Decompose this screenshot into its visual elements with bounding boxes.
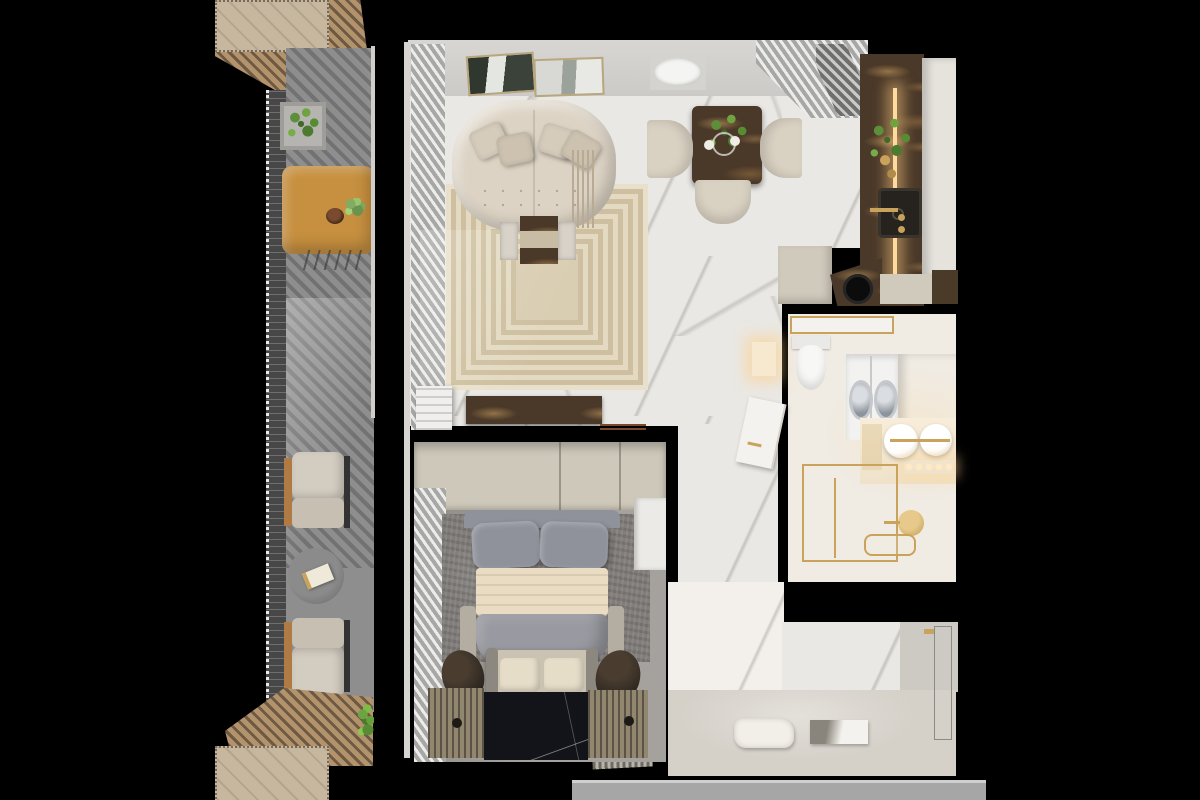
wall-art-right [533, 57, 604, 97]
outdoor-armchair-upper [284, 452, 352, 532]
dining-table [692, 106, 762, 184]
towel-stack [416, 386, 452, 430]
book [302, 563, 334, 589]
dining-chair-left [647, 120, 693, 178]
armchair-seat [292, 498, 344, 528]
entry-door-hardware [924, 629, 934, 634]
mat-knob [624, 716, 634, 726]
dryer-door [874, 380, 898, 420]
shower-inner-glass [834, 478, 836, 558]
flat-art-mat [810, 720, 868, 744]
fruit-bowl [326, 208, 344, 224]
gold-faucet-bar [890, 439, 950, 442]
wire-chair-hint [300, 250, 364, 270]
kitchen-tall-cabinets [922, 58, 956, 276]
outside-corridor-strip [572, 780, 986, 800]
round-side-table [288, 548, 344, 604]
entry-sage-closet [782, 582, 958, 624]
dark-wood-cabinet [932, 270, 958, 304]
bed-pillow-right [539, 521, 609, 569]
balcony-plant-sprig [358, 700, 374, 748]
double-bed [456, 510, 628, 662]
entry-marble-wall-left [668, 582, 784, 692]
washer-door [849, 380, 873, 420]
coffee-table-group [500, 216, 576, 264]
entry-door-outline [934, 626, 952, 740]
door-handle-gold [747, 441, 761, 447]
window-mullion [404, 42, 410, 758]
faucet-knob [898, 226, 905, 233]
shower-arm [884, 521, 900, 524]
curved-sofa [452, 100, 616, 232]
wall-art-left [466, 52, 537, 97]
remote-sticks [600, 424, 646, 430]
planter-plant [283, 105, 323, 147]
floor-plan-scene [0, 0, 1200, 800]
kitchen-sink [878, 188, 922, 238]
oval-wall-plate [654, 58, 702, 86]
bench-cushion [544, 658, 584, 692]
lower-cabinet-left [778, 246, 832, 304]
coffee-side-slab-right [558, 222, 576, 260]
coffee-table-top-dark [520, 216, 558, 231]
glass-partition-top [790, 316, 894, 334]
toilet-bowl [796, 345, 826, 390]
armchair-back-cushion [292, 452, 344, 500]
wardrobe-divider [559, 442, 561, 510]
toilet [792, 336, 830, 392]
outdoor-wood-table [282, 166, 374, 254]
gold-caddy [864, 534, 916, 556]
mat-knob [452, 718, 462, 728]
round-cooktop [843, 274, 873, 304]
tv-console [466, 396, 602, 424]
rain-shower-head [898, 510, 924, 536]
table-flowers [344, 198, 366, 218]
glass-bowl [712, 132, 736, 156]
fluffy-white-mat [734, 718, 794, 748]
coffee-side-slab-left [500, 222, 518, 260]
coffee-table-bottom-dark [520, 248, 558, 264]
bench-cushion [500, 658, 540, 692]
lower-cabinet-right [880, 274, 934, 304]
bed-pillow-left [471, 520, 541, 569]
folded-blanket [476, 568, 608, 616]
gold-faucet [870, 208, 898, 212]
armchair-frame [344, 456, 350, 528]
wood-mat-right [588, 690, 648, 758]
outdoor-armchair-lower [284, 612, 352, 702]
pergola-bottom-deck [215, 746, 329, 800]
balcony-glass-strip [371, 46, 375, 418]
bedroom-door-panel [634, 498, 666, 570]
armchair-seat [292, 618, 344, 648]
armchair-wood-rail [284, 622, 292, 692]
pergola-top-deck [215, 0, 329, 52]
coffee-table-band [520, 231, 558, 248]
concrete-planter [280, 102, 326, 150]
armchair-frame [344, 620, 350, 692]
black-marble-floor [484, 692, 588, 760]
wardrobe [414, 442, 666, 510]
vanity-bulb-lights [904, 460, 954, 474]
gold-jars [876, 150, 902, 184]
wood-mat-left [428, 688, 484, 758]
armchair-wood-rail [284, 458, 292, 526]
dining-chair-right [760, 118, 802, 178]
faucet-knob [898, 214, 905, 221]
lit-niche [752, 342, 776, 376]
wardrobe-divider [619, 442, 621, 510]
